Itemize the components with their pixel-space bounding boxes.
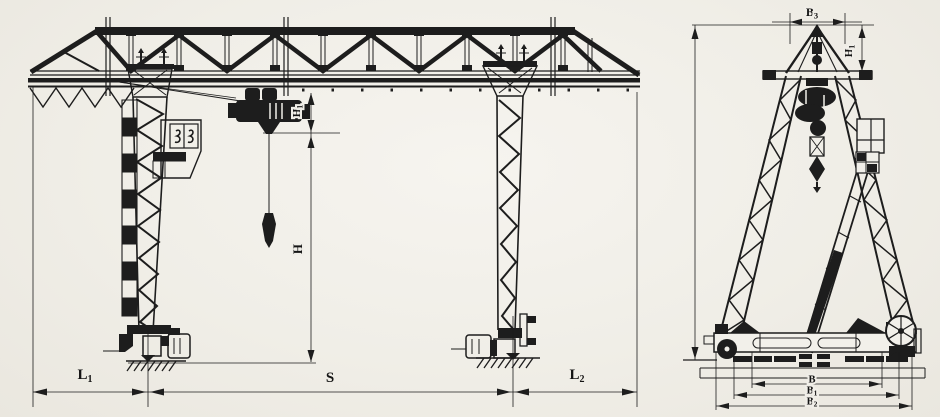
buffer xyxy=(704,336,714,344)
cab-body xyxy=(161,120,201,178)
drawing-canvas: L1 S L2 H1 H B3 H1 xyxy=(0,0,940,417)
rail-break-marks xyxy=(799,354,830,367)
right-bogie xyxy=(451,314,540,368)
dim-label-b3: B3 xyxy=(806,5,818,21)
right-leg xyxy=(483,61,537,330)
carriage-beam xyxy=(714,333,916,352)
dim-label-span: S xyxy=(326,370,334,386)
hoist-motor-side xyxy=(798,87,836,107)
hook-block-side xyxy=(809,156,825,182)
left-leg xyxy=(122,64,174,332)
side-left-leg-lattice xyxy=(722,80,800,334)
bottom-chord xyxy=(30,71,640,75)
travel-motor-left xyxy=(168,334,190,358)
ground-hatch-right xyxy=(477,358,533,368)
hoist-side xyxy=(795,78,836,193)
front-view: L1 S L2 H1 H xyxy=(28,17,640,407)
right-leg-chords xyxy=(497,96,523,330)
crane-dimension-drawing: L1 S L2 H1 H B3 H1 xyxy=(0,0,940,417)
top-cross-beam xyxy=(763,71,872,79)
festoon-zigzag xyxy=(30,88,134,107)
dim-label-l1: L1 xyxy=(77,367,92,385)
rail-segment xyxy=(733,356,796,362)
dimensions-side-top: B3 H1 xyxy=(683,5,874,360)
rail-segment xyxy=(845,356,908,362)
left-bogie xyxy=(103,325,190,371)
trolley-wheel xyxy=(262,88,277,101)
side-right-leg-lattice xyxy=(836,80,914,334)
dim-label-b: B xyxy=(808,375,815,386)
left-leg-lattice xyxy=(136,99,163,332)
trolley-wheel xyxy=(245,88,260,101)
operator-cab-front xyxy=(153,120,201,178)
hook-mount xyxy=(258,122,280,134)
top-chord xyxy=(95,27,575,35)
girder-truss xyxy=(28,17,640,96)
left-leg-chords xyxy=(133,97,167,332)
dim-label-b2: B2 xyxy=(807,397,818,409)
apex-frame xyxy=(763,24,872,80)
dim-label-l2: L2 xyxy=(569,367,584,385)
girder-left-slope xyxy=(31,31,97,72)
dim-label-h1-side: H1 xyxy=(843,45,857,58)
left-wheel xyxy=(143,336,161,356)
operator-cab-side xyxy=(856,119,884,173)
hook-block xyxy=(262,213,276,248)
ground-hatch-left xyxy=(127,361,176,371)
side-view: B3 H1 xyxy=(683,5,925,410)
dim-label-h: H xyxy=(290,244,305,254)
